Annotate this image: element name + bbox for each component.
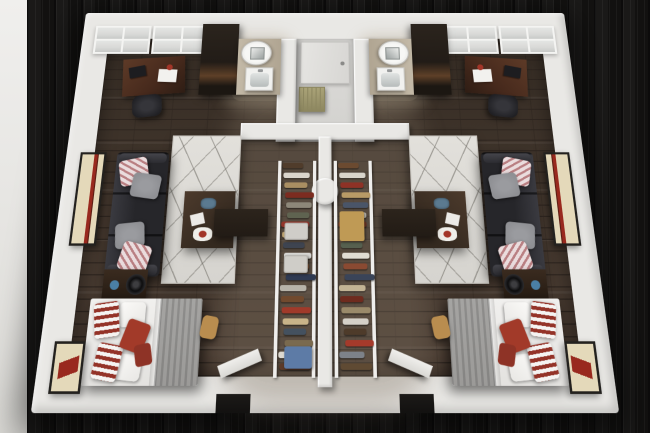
paper [445,212,460,226]
left-window-1 [93,26,152,54]
clothing-item [283,318,309,324]
throw-pillow [129,172,163,200]
window-pane [468,28,495,39]
clothing-item [340,182,363,187]
laptop [504,65,522,79]
window-pane [529,41,555,52]
red-accent-pillow [133,342,152,367]
striped-pillow [530,301,556,340]
clothing-item [340,296,363,302]
window-pane [154,28,181,39]
tray-item [443,231,451,238]
window-pane [153,41,181,52]
closet-divider-wall [318,137,333,388]
blue-cup [530,280,540,290]
desk-chair [132,93,162,118]
clothing-item [342,253,369,259]
sink [377,67,406,90]
storage-box-blue [284,346,312,368]
blue-cup [109,280,119,290]
sink-basin [250,73,269,87]
left-bathroom [198,24,281,95]
radiator [299,87,325,112]
left-edge-strip [0,0,27,433]
right-closet-clothes [338,163,372,375]
left-living-area [103,135,242,283]
window-pane [500,28,526,39]
media-console [213,209,268,236]
nightstand [101,269,148,301]
left-desk-area [118,58,186,119]
clothing-item [281,296,304,302]
right-desk-area [463,58,531,119]
clothing-item [338,163,359,168]
clothing-item [343,202,369,208]
floor-plan-scene [0,0,650,433]
sink-basin [381,73,400,87]
dish [433,198,449,209]
knit-blanket [154,299,203,386]
window-pane [502,41,528,52]
radiator-fin [308,88,311,111]
clothing-item [339,352,364,359]
clothing-item [344,329,367,335]
dish [200,198,216,209]
clothing-item [339,173,365,178]
clothing-item [286,202,312,208]
paper [190,212,205,226]
desk-accessory [477,64,483,70]
bedroom-wall-art [48,341,86,394]
radiator-fin [321,88,324,111]
clothing-item [287,212,309,218]
window-pane [124,28,150,39]
clothing-item [345,274,375,280]
radiator-fin [317,88,320,111]
clothing-item [284,182,307,187]
clothing-item [343,318,369,324]
desk [122,56,185,97]
left-bedroom [80,267,206,389]
clothing-item [341,242,363,248]
clothing-item [339,285,366,291]
radiator-fin [300,88,303,111]
door-handle [340,62,344,66]
clothing-item [342,192,371,198]
right-bedroom [443,267,569,389]
hanging-garment-tan [339,211,364,241]
bed [81,299,203,386]
clothing-item [282,307,311,313]
mirror-reflection [385,47,400,59]
clothing-item [345,340,374,346]
right-bathroom [368,24,451,95]
window-pane [95,41,121,52]
clothing-item [341,363,372,370]
mirror-reflection [250,47,265,59]
storage-box [284,255,308,273]
desk [465,56,528,97]
tall-cabinet [411,24,452,95]
apartment-floor-plan [31,13,619,413]
bedroom-wall-art [564,341,602,394]
nightstand [502,269,549,301]
art-motif [56,352,80,389]
clothing-item [341,307,370,313]
clothing-item [343,263,367,269]
red-accent-pillow [497,342,516,367]
window-pane [527,28,553,39]
clothing-item [280,285,307,291]
throw-pillow [488,172,522,200]
media-console [382,209,437,236]
storage-box [284,223,308,240]
radiator-fin [304,88,307,111]
clothing-item [283,163,304,168]
clothing-item [283,173,309,178]
bed [447,299,569,386]
radiator-fin [312,88,315,111]
table-lamp [125,274,147,295]
desk-chair [488,93,518,118]
striped-pillow [94,301,120,340]
clothing-item [285,192,314,198]
sink [245,67,274,90]
art-motif [570,352,594,389]
papers [157,69,177,82]
window-pane [469,41,497,52]
faucet [258,69,263,72]
clothing-item [283,329,306,335]
clothing-item [283,242,305,248]
vanity-mirror [378,41,410,66]
papers [472,69,492,82]
right-living-area [409,135,548,283]
entry-hall-door [300,42,350,84]
clothing-item [286,274,316,280]
window-pane [122,41,148,52]
left-entry-recess [215,394,250,413]
table-lamp [503,274,525,295]
window-pane [97,28,123,39]
laptop [129,65,147,79]
right-window-2 [498,26,557,54]
faucet [387,69,392,72]
right-entry-recess [399,394,434,413]
tall-cabinet [198,24,239,95]
